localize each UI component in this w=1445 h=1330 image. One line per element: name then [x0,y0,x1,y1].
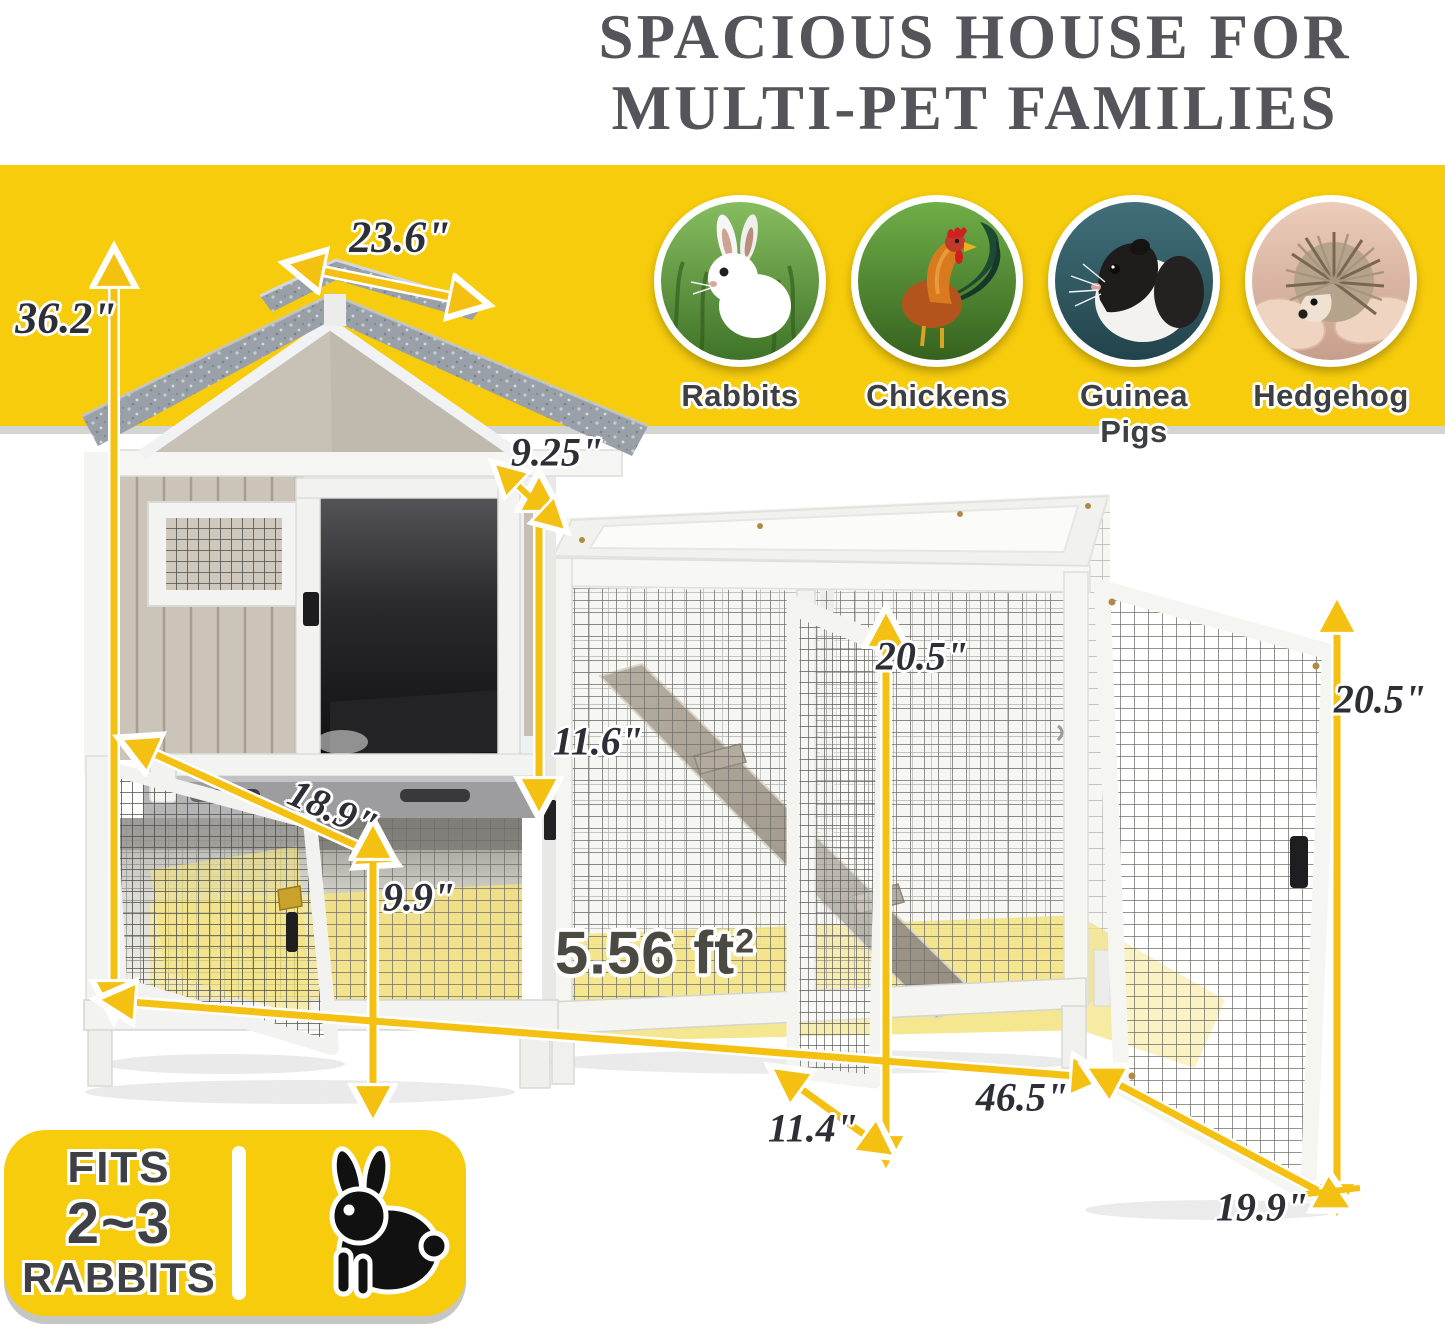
badge-line3: RABBITS [22,1256,216,1300]
house-door-opening [296,468,522,760]
product-infographic: SPACIOUS HOUSE FOR MULTI-PET FAMILIES [0,0,1445,1330]
end-door-latch [1290,836,1308,888]
end-door-open [1102,588,1330,1194]
capacity-text: FITS 2~3 RABBITS [4,1130,234,1316]
dim-lower-height: 9.9" [383,874,455,921]
dim-middle-door-width: 11.4" [768,1105,858,1152]
floor-area-sup: 2 [735,923,755,961]
dim-total-height: 36.2" [15,293,116,344]
rabbit-silhouette-icon [254,1138,458,1308]
dim-run-length: 46.5" [976,1074,1068,1121]
door-latch [303,592,319,626]
dim-run-door-height: 20.5" [876,633,968,680]
side-latch [544,800,556,840]
capacity-badge: FITS 2~3 RABBITS [4,1130,466,1316]
badge-line2: 2~3 [67,1194,171,1255]
middle-door-open [793,598,887,1082]
brass-latch [278,886,302,910]
dim-end-door-width: 19.9" [1216,1184,1308,1231]
floor-area-label: 5.56 ft2 [555,919,755,988]
badge-line1: FITS [67,1145,170,1191]
dim-house-door-height: 11.6" [553,718,643,765]
dim-roof-depth: 23.6" [349,212,450,263]
dim-end-door-height: 20.5" [1334,676,1426,723]
floor-area-value: 5.56 ft [555,920,735,987]
house-window [148,502,300,606]
dim-roof-overhang: 9.25" [511,429,603,476]
badge-divider [232,1146,246,1300]
